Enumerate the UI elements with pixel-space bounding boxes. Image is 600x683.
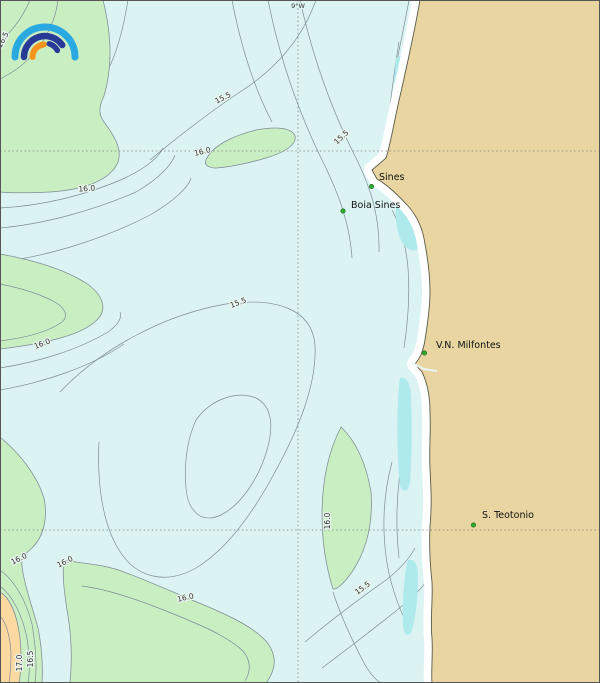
place-label: V.N. Milfontes <box>436 340 501 351</box>
place-label: S. Teotonio <box>482 510 534 521</box>
place-label: Boia Sines <box>351 200 400 211</box>
contour-label: 16.0 <box>78 183 96 193</box>
place-dot <box>369 184 373 188</box>
contour-label: 16.5 <box>26 650 35 667</box>
meridian-label: 9°W <box>291 2 305 10</box>
sst-map-canvas: 9°W 16.5 15.5 15.5 16.0 16.0 15.5 16.0 1… <box>0 0 600 683</box>
place-dot <box>471 523 475 527</box>
place-dot <box>341 209 345 213</box>
place-dot <box>422 351 426 355</box>
sst-contour-map: 9°W 16.5 15.5 15.5 16.0 16.0 15.5 16.0 1… <box>0 0 600 683</box>
place-label: Sines <box>379 172 405 183</box>
contour-label: 17.0 <box>15 654 24 671</box>
contour-label: 16.0 <box>323 512 332 529</box>
